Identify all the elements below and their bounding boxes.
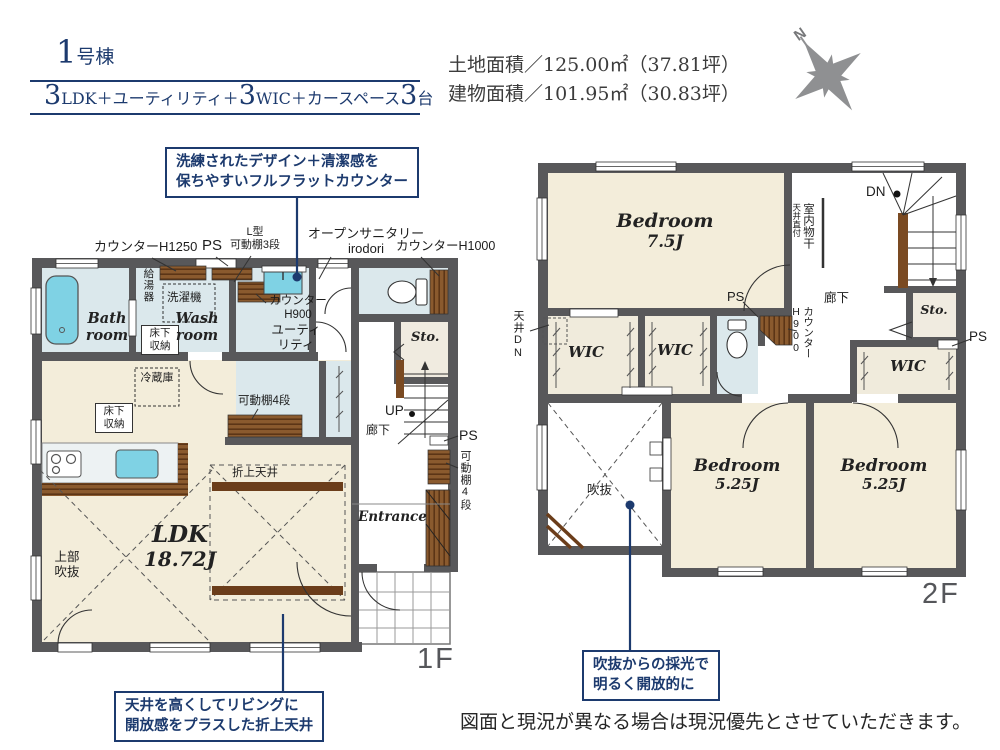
label-wash-line1: Wash <box>167 310 227 327</box>
label-bedroom-b-line2: 5.25J <box>671 476 803 494</box>
label-storage-2f: Sto. <box>916 303 952 318</box>
label-entrance: Entrance <box>358 510 424 526</box>
callout-counter-line1: 洗練されたデザイン＋清潔感を <box>176 152 408 172</box>
callout-ceiling-line2: 開放感をプラスした折上天井 <box>125 716 313 736</box>
kitchen-counter-icon <box>42 443 188 496</box>
label-water-heater: 給湯器 <box>142 268 154 303</box>
label-utility-line1: ユーティ <box>262 323 330 338</box>
label-ldk-line2: 18.72J <box>118 548 242 572</box>
label-ps-right-2f: PS <box>969 329 987 345</box>
stove-icon <box>47 451 81 477</box>
header-rule-bottom <box>30 113 420 115</box>
label-bath-line1: Bath <box>78 310 136 327</box>
compass-icon <box>768 14 885 134</box>
label-l-shelf-line2: 可動棚3段 <box>224 239 286 252</box>
label-wic-a: WIC <box>557 344 615 362</box>
floorplan-page: 1号棟 3LDK＋ユーティリティ＋3WIC＋カースペース3台 土地面積／125.… <box>0 0 1000 750</box>
label-drying-sub: 天井直付 <box>791 203 801 249</box>
callout-daylight: 吹抜からの採光で 明るく開放的に <box>582 650 720 701</box>
label-counter-h900-1f: カウンター H900 <box>260 295 336 322</box>
callout-daylight-line1: 吹抜からの採光で <box>593 655 709 675</box>
page-title: 1号棟 <box>56 34 114 72</box>
label-bedroom-a-line1: Bedroom <box>598 210 732 232</box>
building-area: 建物面積／101.95㎡（30.83坪） <box>448 79 740 106</box>
floor-label-2f: 2F <box>922 578 960 611</box>
callout-ceiling-line1: 天井を高くしてリビングに <box>125 696 313 716</box>
disclaimer-text: 図面と現況が異なる場合は現況優先とさせていただきます。 <box>460 712 971 734</box>
label-counter-h900-1f-line1: カウンター <box>260 295 336 309</box>
building-number: 1 <box>56 34 76 72</box>
label-ps-corner-2f: PS <box>727 289 744 304</box>
label-counter-h900-2f-line1: カウンター <box>802 306 814 359</box>
callout-daylight-line2: 明るく開放的に <box>593 675 709 695</box>
label-fridge: 冷蔵庫 <box>135 372 179 385</box>
label-bath-line2: room <box>78 327 136 344</box>
label-counter-h1000: カウンターH1000 <box>396 239 495 254</box>
spec-text-2: WIC＋カースペース <box>256 90 400 109</box>
label-bedroom-a: Bedroom 7.5J <box>598 210 732 252</box>
label-ldk-line1: LDK <box>118 521 242 548</box>
label-utility-line2: リティ <box>262 338 330 353</box>
label-counter-h900-1f-line2: H900 <box>260 309 336 323</box>
label-void-2f: 吹抜 <box>587 483 612 498</box>
label-underfloor-storage-ldk: 床下 収納 <box>95 403 133 433</box>
callout-counter-line2: 保ちやすいフルフラットカウンター <box>176 172 408 192</box>
label-l-shelf-line1: L型 <box>224 226 286 239</box>
label-coffered-ceiling: 折上天井 <box>232 467 278 481</box>
land-area: 土地面積／125.00㎡（37.81坪） <box>448 50 740 77</box>
toilet-2f-icon <box>727 320 747 358</box>
floor-label-1f: 1F <box>417 643 455 676</box>
label-ps-top: PS <box>202 237 222 255</box>
label-storage-1f: Sto. <box>411 330 439 345</box>
label-counter-h1250: カウンターH1250 <box>94 239 197 254</box>
label-underfloor-ldk-line2: 収納 <box>98 418 130 431</box>
label-ldk: LDK 18.72J <box>118 521 242 572</box>
label-dn: DN <box>866 184 886 200</box>
label-wash-line2: room <box>167 327 227 344</box>
label-underfloor-ldk-line1: 床下 <box>98 405 130 418</box>
label-upper-void: 上部 吹抜 <box>46 550 88 580</box>
label-shelf4-pantry: 可動棚4段 <box>238 395 290 409</box>
spec-num-2: 3 <box>239 80 256 112</box>
label-bedroom-c: Bedroom 5.25J <box>818 456 950 494</box>
label-counter-h900-2f-line2: H900 <box>790 306 802 359</box>
spec-num-1: 3 <box>44 80 61 112</box>
bathtub-icon <box>46 276 78 344</box>
toilet-1f-icon <box>388 279 427 305</box>
label-shelf4-side: 可動棚4段 <box>458 450 471 511</box>
label-upper-void-line1: 上部 <box>46 550 88 565</box>
label-up: UP <box>385 403 404 419</box>
stairs-2f <box>883 173 956 288</box>
label-bedroom-a-line2: 7.5J <box>598 232 732 251</box>
label-ps-side-1f: PS <box>459 427 478 444</box>
label-washer: 洗濯機 <box>167 292 202 306</box>
label-ceiling-dn: 天井DN <box>511 310 524 360</box>
label-wic-c: WIC <box>879 358 937 376</box>
label-wic-b: WIC <box>646 342 704 360</box>
label-counter-h900-2f: カウンター H900 <box>790 306 814 359</box>
callout-counter: 洗練されたデザイン＋清潔感を 保ちやすいフルフラットカウンター <box>165 147 419 198</box>
spec-line: 3LDK＋ユーティリティ＋3WIC＋カースペース3台 <box>44 80 433 112</box>
label-bedroom-c-line1: Bedroom <box>818 456 950 476</box>
label-indoor-drying: 室内物干 天井直付 <box>791 203 814 249</box>
label-l-shelf: L型 可動棚3段 <box>224 226 286 252</box>
spec-text-1: LDK＋ユーティリティ＋ <box>61 90 239 109</box>
sink-icon <box>116 450 158 478</box>
spec-text-3: 台 <box>417 90 433 109</box>
shoe-cabinet-icon <box>426 490 450 566</box>
label-utility: ユーティ リティ <box>262 323 330 353</box>
label-bedroom-b-line1: Bedroom <box>671 456 803 476</box>
spec-num-3: 3 <box>400 80 417 112</box>
callout-ceiling: 天井を高くしてリビングに 開放感をプラスした折上天井 <box>114 691 324 742</box>
label-bath-room: Bath room <box>78 310 136 344</box>
label-bedroom-b: Bedroom 5.25J <box>671 456 803 494</box>
label-hallway-1f: 廊下 <box>366 423 390 437</box>
building-suffix: 号棟 <box>76 46 114 68</box>
label-bedroom-c-line2: 5.25J <box>818 476 950 494</box>
label-wash-room: Wash room <box>167 310 227 344</box>
label-hallway-2f: 廊下 <box>824 291 849 306</box>
label-drying-main: 室内物干 <box>801 203 814 249</box>
label-upper-void-line2: 吹抜 <box>46 565 88 580</box>
